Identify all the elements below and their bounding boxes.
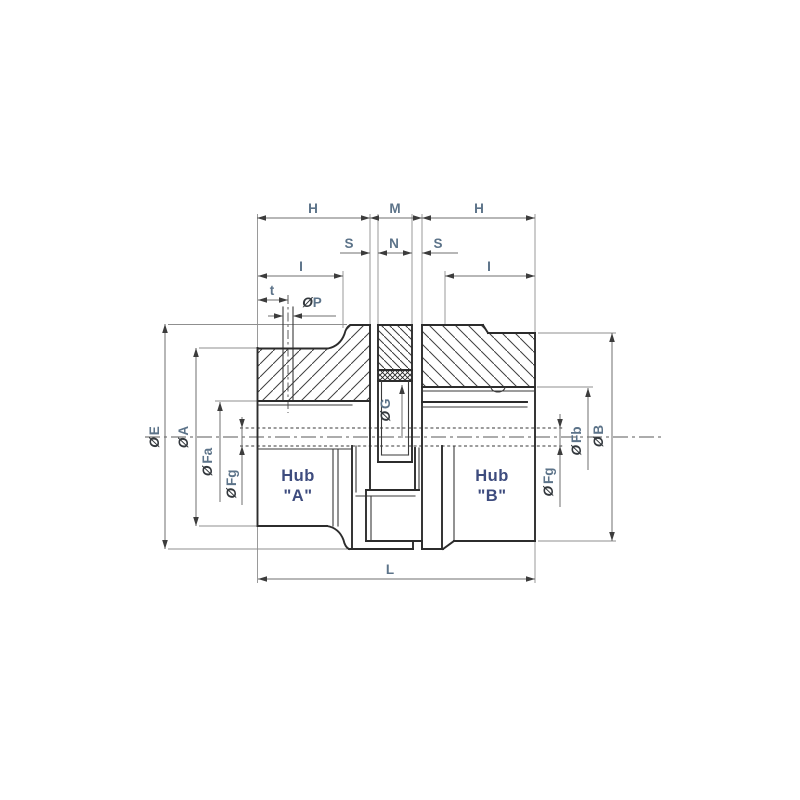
dim-label-dia-fg-right: ØFg	[541, 467, 556, 496]
hub-b-label-line2: "B"	[477, 487, 506, 505]
dim-label-h-right: H	[474, 201, 484, 216]
hub-a-label-line2: "A"	[283, 487, 312, 505]
dim-label-l: L	[386, 562, 394, 577]
dim-label-dia-p: ØP	[302, 295, 322, 310]
knurl-band	[378, 370, 412, 381]
dim-label-dia-g: ØG	[378, 398, 393, 421]
dim-label-i-left: I	[299, 259, 303, 274]
dim-label-dia-fg-left: ØFg	[224, 469, 239, 498]
hub-a-label-line1: Hub	[281, 467, 315, 485]
spider-section-hatch	[378, 325, 412, 370]
hub-a-section-hatch	[258, 325, 370, 401]
dim-label-s-right: S	[433, 236, 442, 251]
dim-label-s-left: S	[344, 236, 353, 251]
dim-label-dia-fb: ØFb	[569, 426, 584, 455]
dim-label-t: t	[270, 283, 275, 298]
dim-label-m: M	[389, 201, 400, 216]
section-hatching	[258, 325, 535, 401]
dim-label-dia-b: ØB	[591, 425, 606, 448]
technical-drawing-page: H M H S N S I I t ØP L ØE ØA ØFa ØFg ØG …	[0, 0, 800, 800]
dim-label-h-left: H	[308, 201, 318, 216]
dimension-labels: H M H S N S I I t ØP L ØE ØA ØFa ØFg ØG …	[147, 201, 606, 577]
hub-b-section-hatch	[422, 325, 535, 387]
dim-label-dia-fa: ØFa	[200, 447, 215, 476]
hub-b-label-line1: Hub	[475, 467, 509, 485]
dim-label-n: N	[389, 236, 399, 251]
part-labels: Hub "A" Hub "B"	[281, 467, 509, 505]
coupling-section-drawing: H M H S N S I I t ØP L ØE ØA ØFa ØFg ØG …	[0, 0, 800, 800]
dim-label-i-right: I	[487, 259, 491, 274]
